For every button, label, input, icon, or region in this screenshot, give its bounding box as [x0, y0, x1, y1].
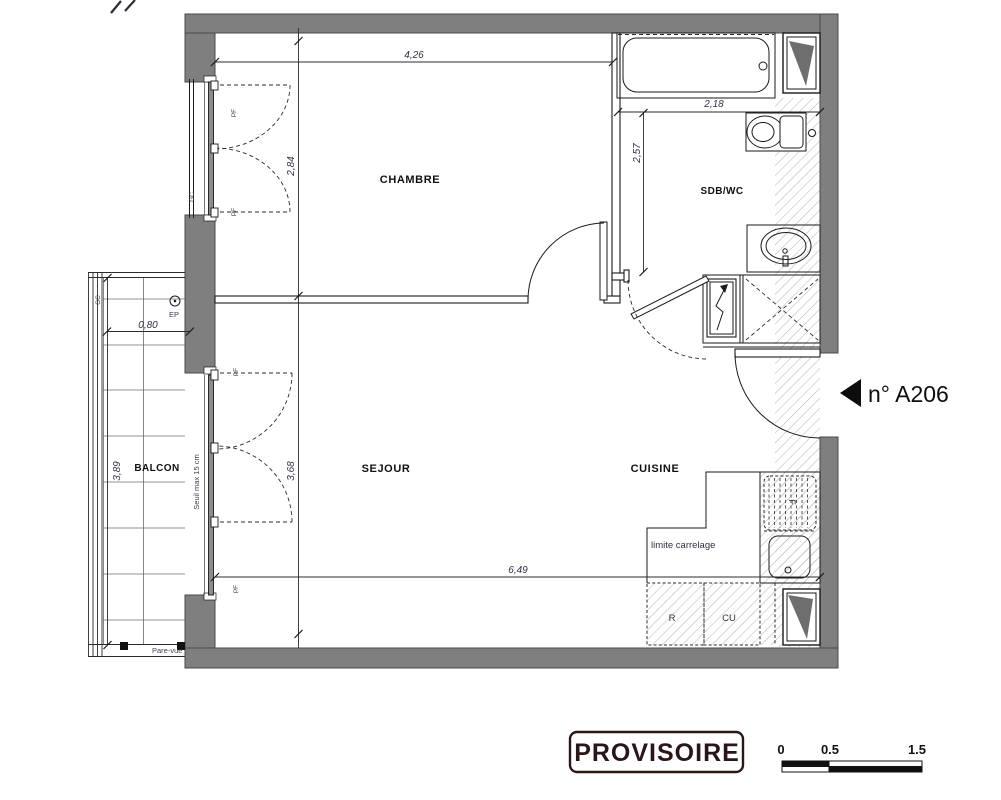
interior-partitions: [215, 33, 629, 303]
pf-label: PF: [233, 368, 240, 376]
east-wall-upper: [820, 14, 838, 353]
ep-label: EP: [169, 310, 179, 319]
seuil-label: Seuil max 15 cm: [192, 454, 201, 509]
dim-balcon-depth: 3,89: [112, 461, 123, 481]
balcony-tile-grid: [103, 278, 185, 644]
drain: [759, 62, 767, 70]
gc-label: GC: [189, 192, 196, 202]
window-top-right: [783, 33, 820, 93]
dim-sdb-width: 2,18: [703, 99, 724, 110]
dim-sejour-depth: 3,68: [286, 461, 297, 481]
east-wall-lower: [820, 437, 838, 668]
room-label-sdb: SDB/WC: [701, 186, 744, 197]
scale-tick-05: 0.5: [821, 742, 839, 757]
west-wall-seg1: [185, 33, 215, 82]
toilet: [746, 113, 816, 151]
hinge: [211, 370, 218, 380]
dim-sejour-width: 6,49: [508, 565, 528, 576]
glazing: [209, 375, 214, 595]
balcony: EP BALCON Pare-vue: [88, 272, 185, 657]
unit-number: n° A206: [868, 381, 949, 407]
floor-plan-page: EP BALCON Pare-vue PF PF GC: [0, 0, 1001, 800]
door-arrow-icon: [840, 379, 861, 407]
dim-chambre-depth: 2,84: [286, 156, 297, 177]
wall-chambre-sejour: [215, 296, 528, 303]
chambre-window: PF PF GC: [189, 79, 290, 218]
pf-label: PF: [231, 109, 238, 117]
cooking-label: CU: [722, 613, 736, 624]
bathroom-door: [628, 276, 709, 359]
scale-bar: 0 0.5 1.5: [777, 742, 926, 772]
scale-tick-0: 0: [777, 742, 784, 757]
unit-number-callout: n° A206: [840, 379, 949, 407]
pf-label: PF: [233, 585, 240, 593]
cropped-sketch-marks: [111, 0, 135, 13]
railing-post: [120, 642, 128, 650]
hinge: [211, 81, 218, 90]
pf-label: PF: [231, 208, 238, 216]
scale-tick-15: 1.5: [908, 742, 926, 757]
electrical-panel: [707, 279, 736, 337]
provisoire-stamp: PROVISOIRE: [570, 732, 743, 772]
gc-label: GC: [95, 295, 102, 305]
dim-balcon-width: 0,80: [138, 320, 158, 331]
room-label-balcon: BALCON: [134, 463, 179, 474]
limite-carrelage-label: limite carrelage: [651, 540, 715, 551]
room-label-cuisine: CUISINE: [631, 463, 680, 475]
wall-chambre-sdb: [612, 33, 620, 296]
west-wall-seg3: [185, 595, 215, 648]
south-wall: [185, 648, 838, 668]
north-wall: [185, 14, 838, 33]
room-label-chambre: CHAMBRE: [380, 174, 440, 186]
tiled-floor-hatch: [647, 98, 820, 647]
bedroom-door: [528, 222, 607, 300]
west-wall-seg2: [185, 215, 215, 373]
pare-vue-label: Pare-vue: [152, 646, 182, 655]
dim-sdb-depth: 2,57: [632, 143, 643, 164]
dim-chambre-width: 4,26: [404, 50, 424, 61]
bathtub: [617, 33, 775, 98]
tile-limit-line: [647, 472, 760, 583]
fridge-label: R: [669, 613, 676, 624]
window-bottom-right: [783, 589, 820, 645]
room-label-sejour: SEJOUR: [362, 463, 411, 475]
stamp-text: PROVISOIRE: [574, 739, 740, 767]
oven-label: F: [786, 499, 797, 505]
